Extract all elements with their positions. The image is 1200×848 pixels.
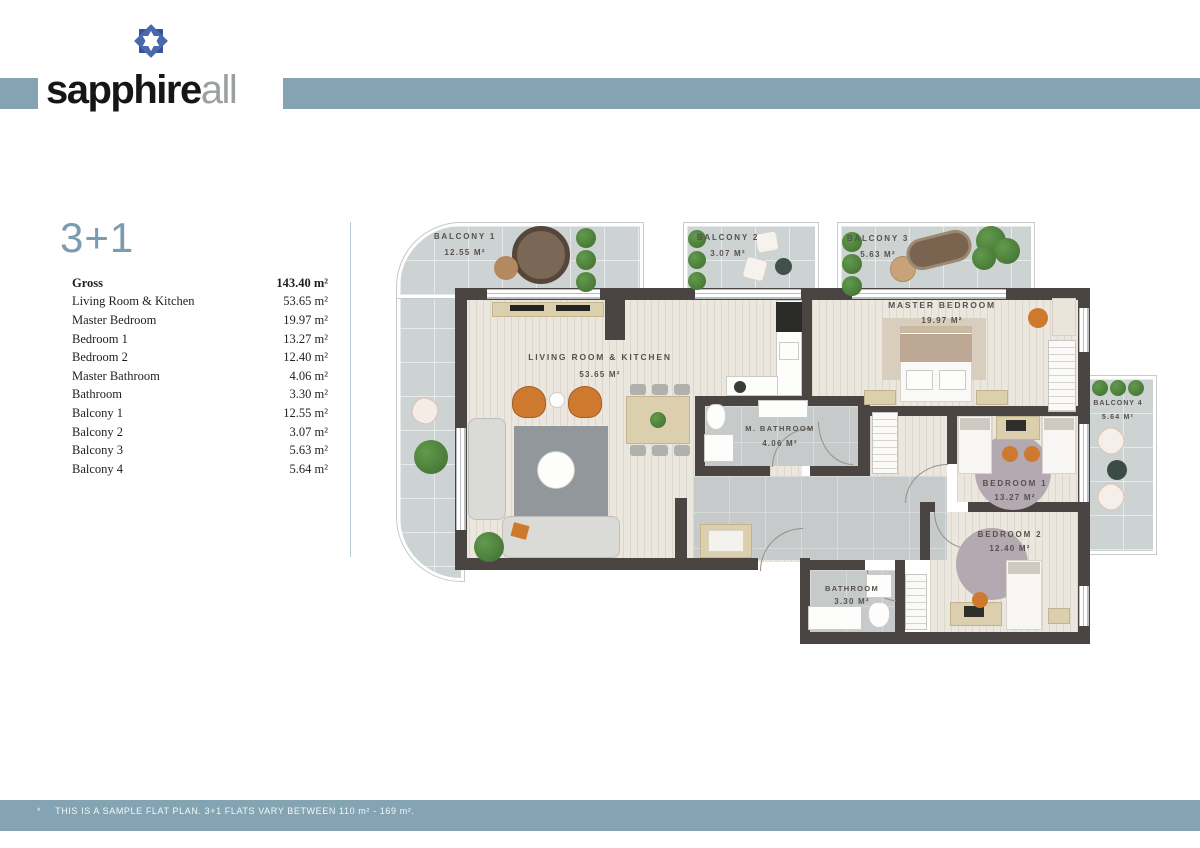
table-row: Bedroom 113.27 m²	[72, 330, 328, 349]
table-row: Balcony 45.64 m²	[72, 460, 328, 479]
balcony-table	[494, 256, 518, 280]
palm-plant	[994, 238, 1020, 264]
table-row: Master Bedroom19.97 m²	[72, 311, 328, 330]
table-row: Bedroom 212.40 m²	[72, 348, 328, 367]
window-balcony3	[852, 289, 1006, 299]
balcony-table	[1107, 460, 1127, 480]
room-label-balcony4: BALCONY 4	[1086, 400, 1150, 407]
area-table: Gross143.40 m² Living Room & Kitchen53.6…	[72, 274, 328, 479]
nightstand	[864, 390, 896, 405]
row-label: Bedroom 1	[72, 332, 128, 347]
armchair	[512, 386, 546, 418]
kitchen-sink	[779, 342, 799, 360]
brand-word-bold: sapphire	[46, 68, 201, 112]
window-living-left	[456, 428, 466, 530]
table-row: Gross143.40 m²	[72, 274, 328, 293]
footer-note: *THIS IS A SAMPLE FLAT PLAN. 3+1 FLATS V…	[37, 806, 415, 816]
row-value: 4.06 m²	[290, 369, 328, 384]
room-area-balcony4: 5.64 M²	[1086, 414, 1150, 421]
row-label: Balcony 2	[72, 425, 123, 440]
header-band-right	[283, 78, 1200, 109]
bed-pillow	[939, 370, 966, 390]
vanity-shelf	[1052, 298, 1076, 336]
room-area-balcony2: 3.07 M²	[678, 249, 778, 258]
room-label-master: MASTER BEDROOM	[852, 300, 1032, 310]
unit-type-title: 3+1	[60, 214, 134, 262]
row-label: Balcony 4	[72, 462, 123, 477]
balcony-plant	[576, 250, 596, 270]
panel-divider	[350, 222, 351, 557]
room-area-bed1: 13.27 M²	[950, 493, 1080, 502]
wall-pillar	[605, 288, 625, 340]
brand-wordmark: sapphireall	[46, 70, 236, 110]
row-value: 5.63 m²	[290, 443, 328, 458]
room-area-mbath: 4.06 M²	[700, 439, 860, 448]
tv-screen	[556, 305, 590, 311]
palm-plant	[972, 246, 996, 270]
window-balcony4	[1079, 424, 1089, 502]
row-value: 12.55 m²	[283, 406, 328, 421]
balcony-table	[775, 258, 792, 275]
row-label: Balcony 1	[72, 406, 123, 421]
row-label: Master Bedroom	[72, 313, 156, 328]
nightstand	[976, 390, 1008, 405]
footnote-text: THIS IS A SAMPLE FLAT PLAN. 3+1 FLATS VA…	[55, 806, 414, 816]
row-value: 19.97 m²	[283, 313, 328, 328]
nightstand	[1048, 608, 1070, 624]
room-area-living: 53.65 M²	[480, 370, 720, 379]
coffee-table	[537, 451, 575, 489]
hall-wardrobe	[905, 574, 927, 630]
dining-chair	[630, 384, 646, 395]
bathtub	[808, 606, 862, 630]
dining-chair	[674, 445, 690, 456]
kettle	[734, 381, 746, 393]
armchair	[568, 386, 602, 418]
room-label-balcony2: BALCONY 2	[678, 233, 778, 242]
room-label-balcony3: BALCONY 3	[820, 234, 936, 243]
row-label: Living Room & Kitchen	[72, 294, 195, 309]
table-row: Balcony 112.55 m²	[72, 404, 328, 423]
wall-bedroom2-left	[920, 502, 930, 560]
row-value: 5.64 m²	[290, 462, 328, 477]
row-value: 53.65 m²	[283, 294, 328, 309]
balcony-plant	[414, 440, 448, 474]
dining-chair	[652, 384, 668, 395]
master-blanket	[900, 334, 972, 362]
brand-word-light: all	[201, 68, 237, 112]
table-row: Balcony 23.07 m²	[72, 423, 328, 442]
bed-pillow	[960, 418, 990, 430]
room-label-living: LIVING ROOM & KITCHEN	[480, 352, 720, 362]
dining-chair	[630, 445, 646, 456]
laptop	[1006, 420, 1026, 431]
balcony-plant	[1092, 380, 1108, 396]
row-label: Master Bathroom	[72, 369, 160, 384]
room-area-master: 19.97 M²	[852, 316, 1032, 325]
master-wardrobe	[1048, 340, 1076, 412]
brochure-page: sapphireall 3+1 Gross143.40 m² Living Ro…	[0, 0, 1200, 848]
brand-star-icon	[128, 16, 174, 66]
room-area-bath: 3.30 M²	[798, 597, 906, 606]
room-label-bed2: BEDROOM 2	[940, 530, 1080, 539]
balcony-plant	[576, 228, 596, 248]
room-label-mbath: M. BATHROOM	[700, 424, 860, 433]
bed-pillow	[1008, 562, 1040, 574]
room-label-bed1: BEDROOM 1	[950, 479, 1080, 488]
table-row: Balcony 35.63 m²	[72, 441, 328, 460]
stove	[776, 302, 802, 332]
wall-bedroom1-left	[947, 416, 957, 464]
wall-entry-bottom	[693, 558, 758, 570]
sofa-section	[468, 418, 506, 520]
corridor-wardrobe	[872, 412, 898, 474]
row-value: 3.30 m²	[290, 387, 328, 402]
row-label: Balcony 3	[72, 443, 123, 458]
table-row: Master Bathroom4.06 m²	[72, 367, 328, 386]
row-value: 12.40 m²	[283, 350, 328, 365]
bed-pillow	[1044, 418, 1074, 430]
room-area-bed2: 12.40 M²	[940, 544, 1080, 553]
side-table	[549, 392, 565, 408]
floor-plant	[474, 532, 504, 562]
dining-chair	[652, 445, 668, 456]
footnote-asterisk: *	[37, 806, 41, 816]
room-label-balcony1: BALCONY 1	[408, 232, 522, 241]
balcony-plant	[576, 272, 596, 292]
row-value: 13.27 m²	[283, 332, 328, 347]
vanity-sink	[758, 400, 808, 418]
master-headboard	[900, 326, 972, 333]
balcony-plant	[1128, 380, 1144, 396]
desk-chair	[1024, 446, 1040, 462]
window-balcony2	[695, 289, 801, 299]
table-plant	[650, 412, 666, 428]
row-label: Gross	[72, 276, 103, 291]
row-label: Bedroom 2	[72, 350, 128, 365]
header-band-left	[0, 78, 38, 109]
row-value: 3.07 m²	[290, 425, 328, 440]
window-bedroom2	[1079, 586, 1089, 626]
table-row: Bathroom3.30 m²	[72, 386, 328, 405]
desk-chair	[1002, 446, 1018, 462]
desk-chair	[972, 592, 988, 608]
bed-pillow	[906, 370, 933, 390]
wall-mbath-bottom-a	[695, 466, 770, 476]
dining-chair	[674, 384, 690, 395]
room-label-bath: BATHROOM	[798, 584, 906, 593]
balcony-plant	[688, 272, 706, 290]
balcony-plant	[1110, 380, 1126, 396]
row-value: 143.40 m²	[276, 276, 328, 291]
tv-screen	[510, 305, 544, 311]
room-area-balcony1: 12.55 M²	[408, 248, 522, 257]
wall-bathroom-top	[800, 560, 865, 570]
window-master-right	[1079, 308, 1089, 352]
wall-lower-bottom	[800, 632, 1090, 644]
wall-bathroom-right	[895, 560, 905, 632]
table-row: Living Room & Kitchen53.65 m²	[72, 293, 328, 312]
room-area-balcony3: 5.63 M²	[820, 250, 936, 259]
balcony-plant	[842, 276, 862, 296]
closet-front	[708, 530, 744, 552]
row-label: Bathroom	[72, 387, 122, 402]
wall-hall-stub	[675, 498, 687, 560]
